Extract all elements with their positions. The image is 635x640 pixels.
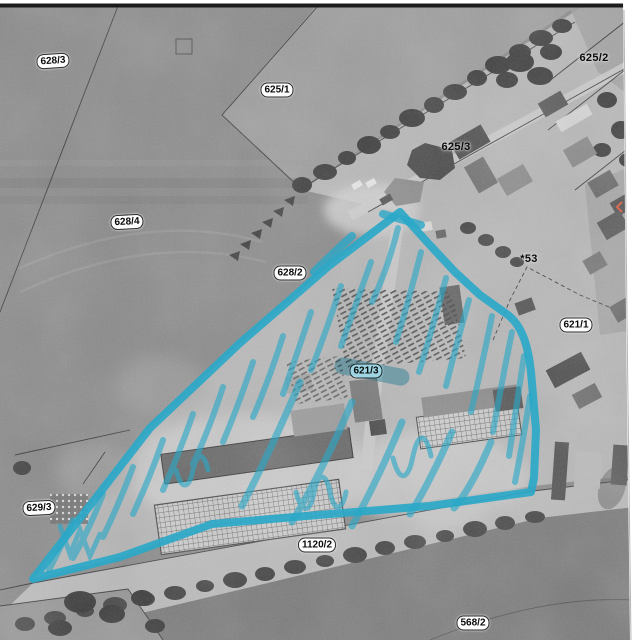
parcel-label-625-1: 625/1 [260,83,293,98]
parcel-label-621-1: 621/1 [559,318,592,333]
parcel-labels-layer: 628/3625/1625/2625/3628/4628/2*53621/162… [0,0,635,640]
parcel-label-628-2: 628/2 [273,266,306,281]
parcel-label-568-2: 568/2 [456,616,489,631]
parcel-label-628-3: 628/3 [36,52,70,69]
parcel-label-53: *53 [520,253,537,265]
parcel-label-1120-2: 1120/2 [298,538,336,553]
cadastral-aerial-map: 628/3625/1625/2625/3628/4628/2*53621/162… [0,0,635,640]
parcel-label-625-2: 625/2 [579,52,608,64]
parcel-label-629-3: 629/3 [22,500,56,517]
parcel-label-625-3: 625/3 [441,141,470,153]
parcel-label-628-4: 628/4 [110,214,144,231]
